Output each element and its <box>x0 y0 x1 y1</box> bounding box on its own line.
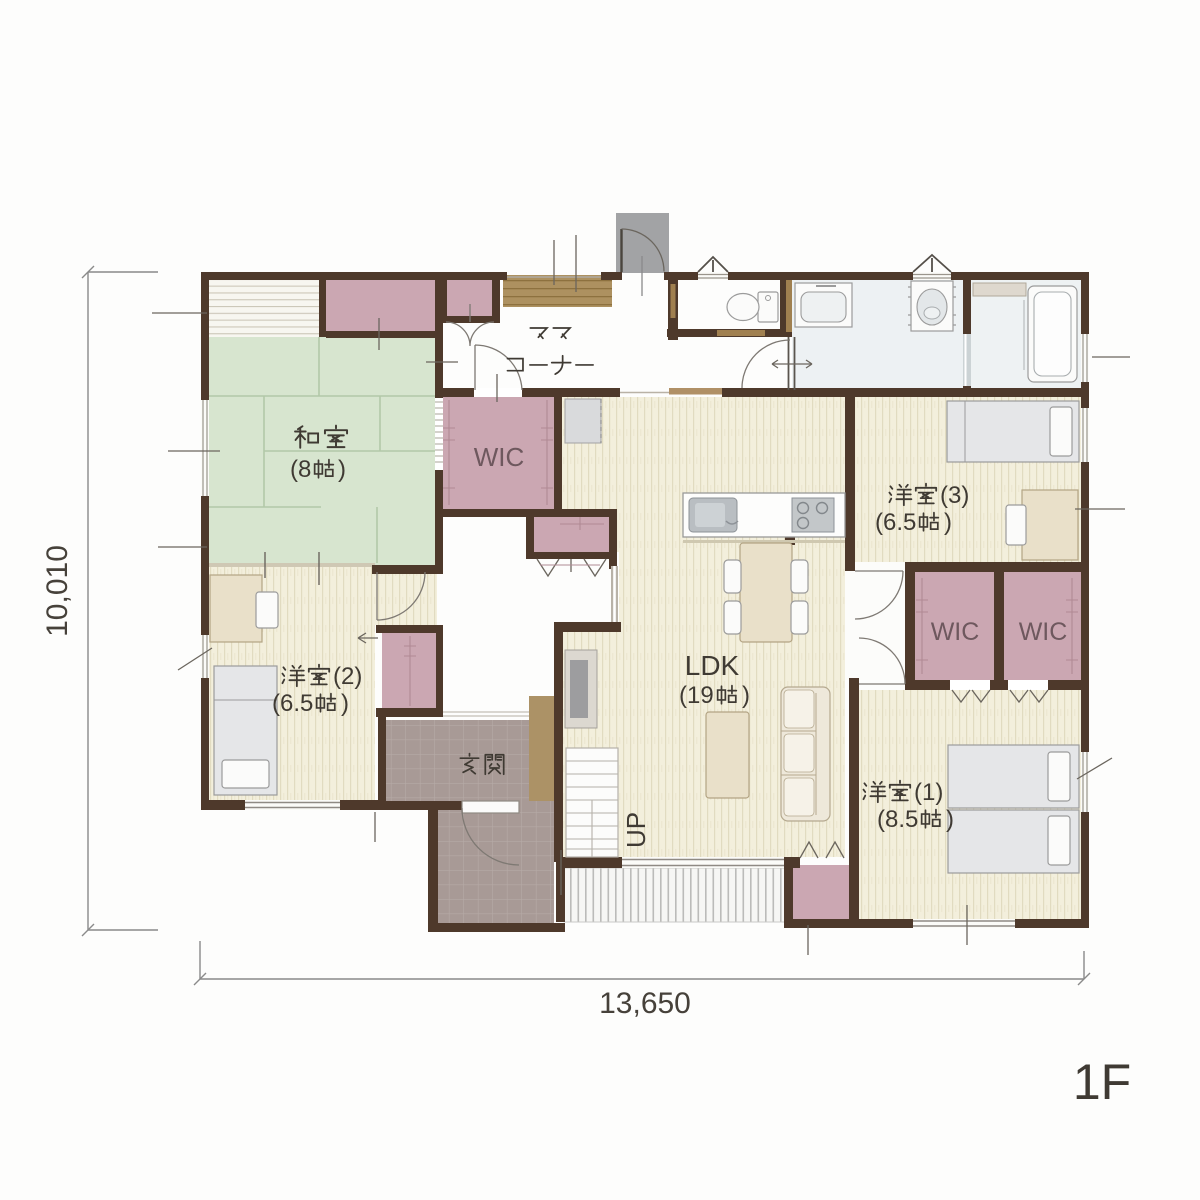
svg-text:): ) <box>338 456 346 483</box>
svg-text:(6.5: (6.5 <box>875 509 916 536</box>
svg-text:10,010: 10,010 <box>41 545 74 637</box>
svg-text:): ) <box>742 682 750 709</box>
svg-text:): ) <box>946 806 954 833</box>
svg-text:WIC: WIC <box>931 618 980 646</box>
svg-text:WIC: WIC <box>1019 618 1068 646</box>
svg-text:(1): (1) <box>914 779 943 806</box>
svg-text:(8.5: (8.5 <box>877 806 918 833</box>
svg-text:(3): (3) <box>940 482 969 509</box>
svg-text:LDK: LDK <box>685 650 740 681</box>
svg-text:1F: 1F <box>1073 1054 1131 1110</box>
svg-text:): ) <box>944 509 952 536</box>
svg-text:(19: (19 <box>679 682 714 709</box>
svg-text:(6.5: (6.5 <box>272 690 313 717</box>
svg-text:13,650: 13,650 <box>599 987 691 1020</box>
svg-text:(2): (2) <box>333 663 362 690</box>
svg-text:WIC: WIC <box>474 442 525 472</box>
svg-text:(8: (8 <box>290 456 311 483</box>
svg-text:UP: UP <box>621 812 651 848</box>
svg-text:): ) <box>341 690 349 717</box>
